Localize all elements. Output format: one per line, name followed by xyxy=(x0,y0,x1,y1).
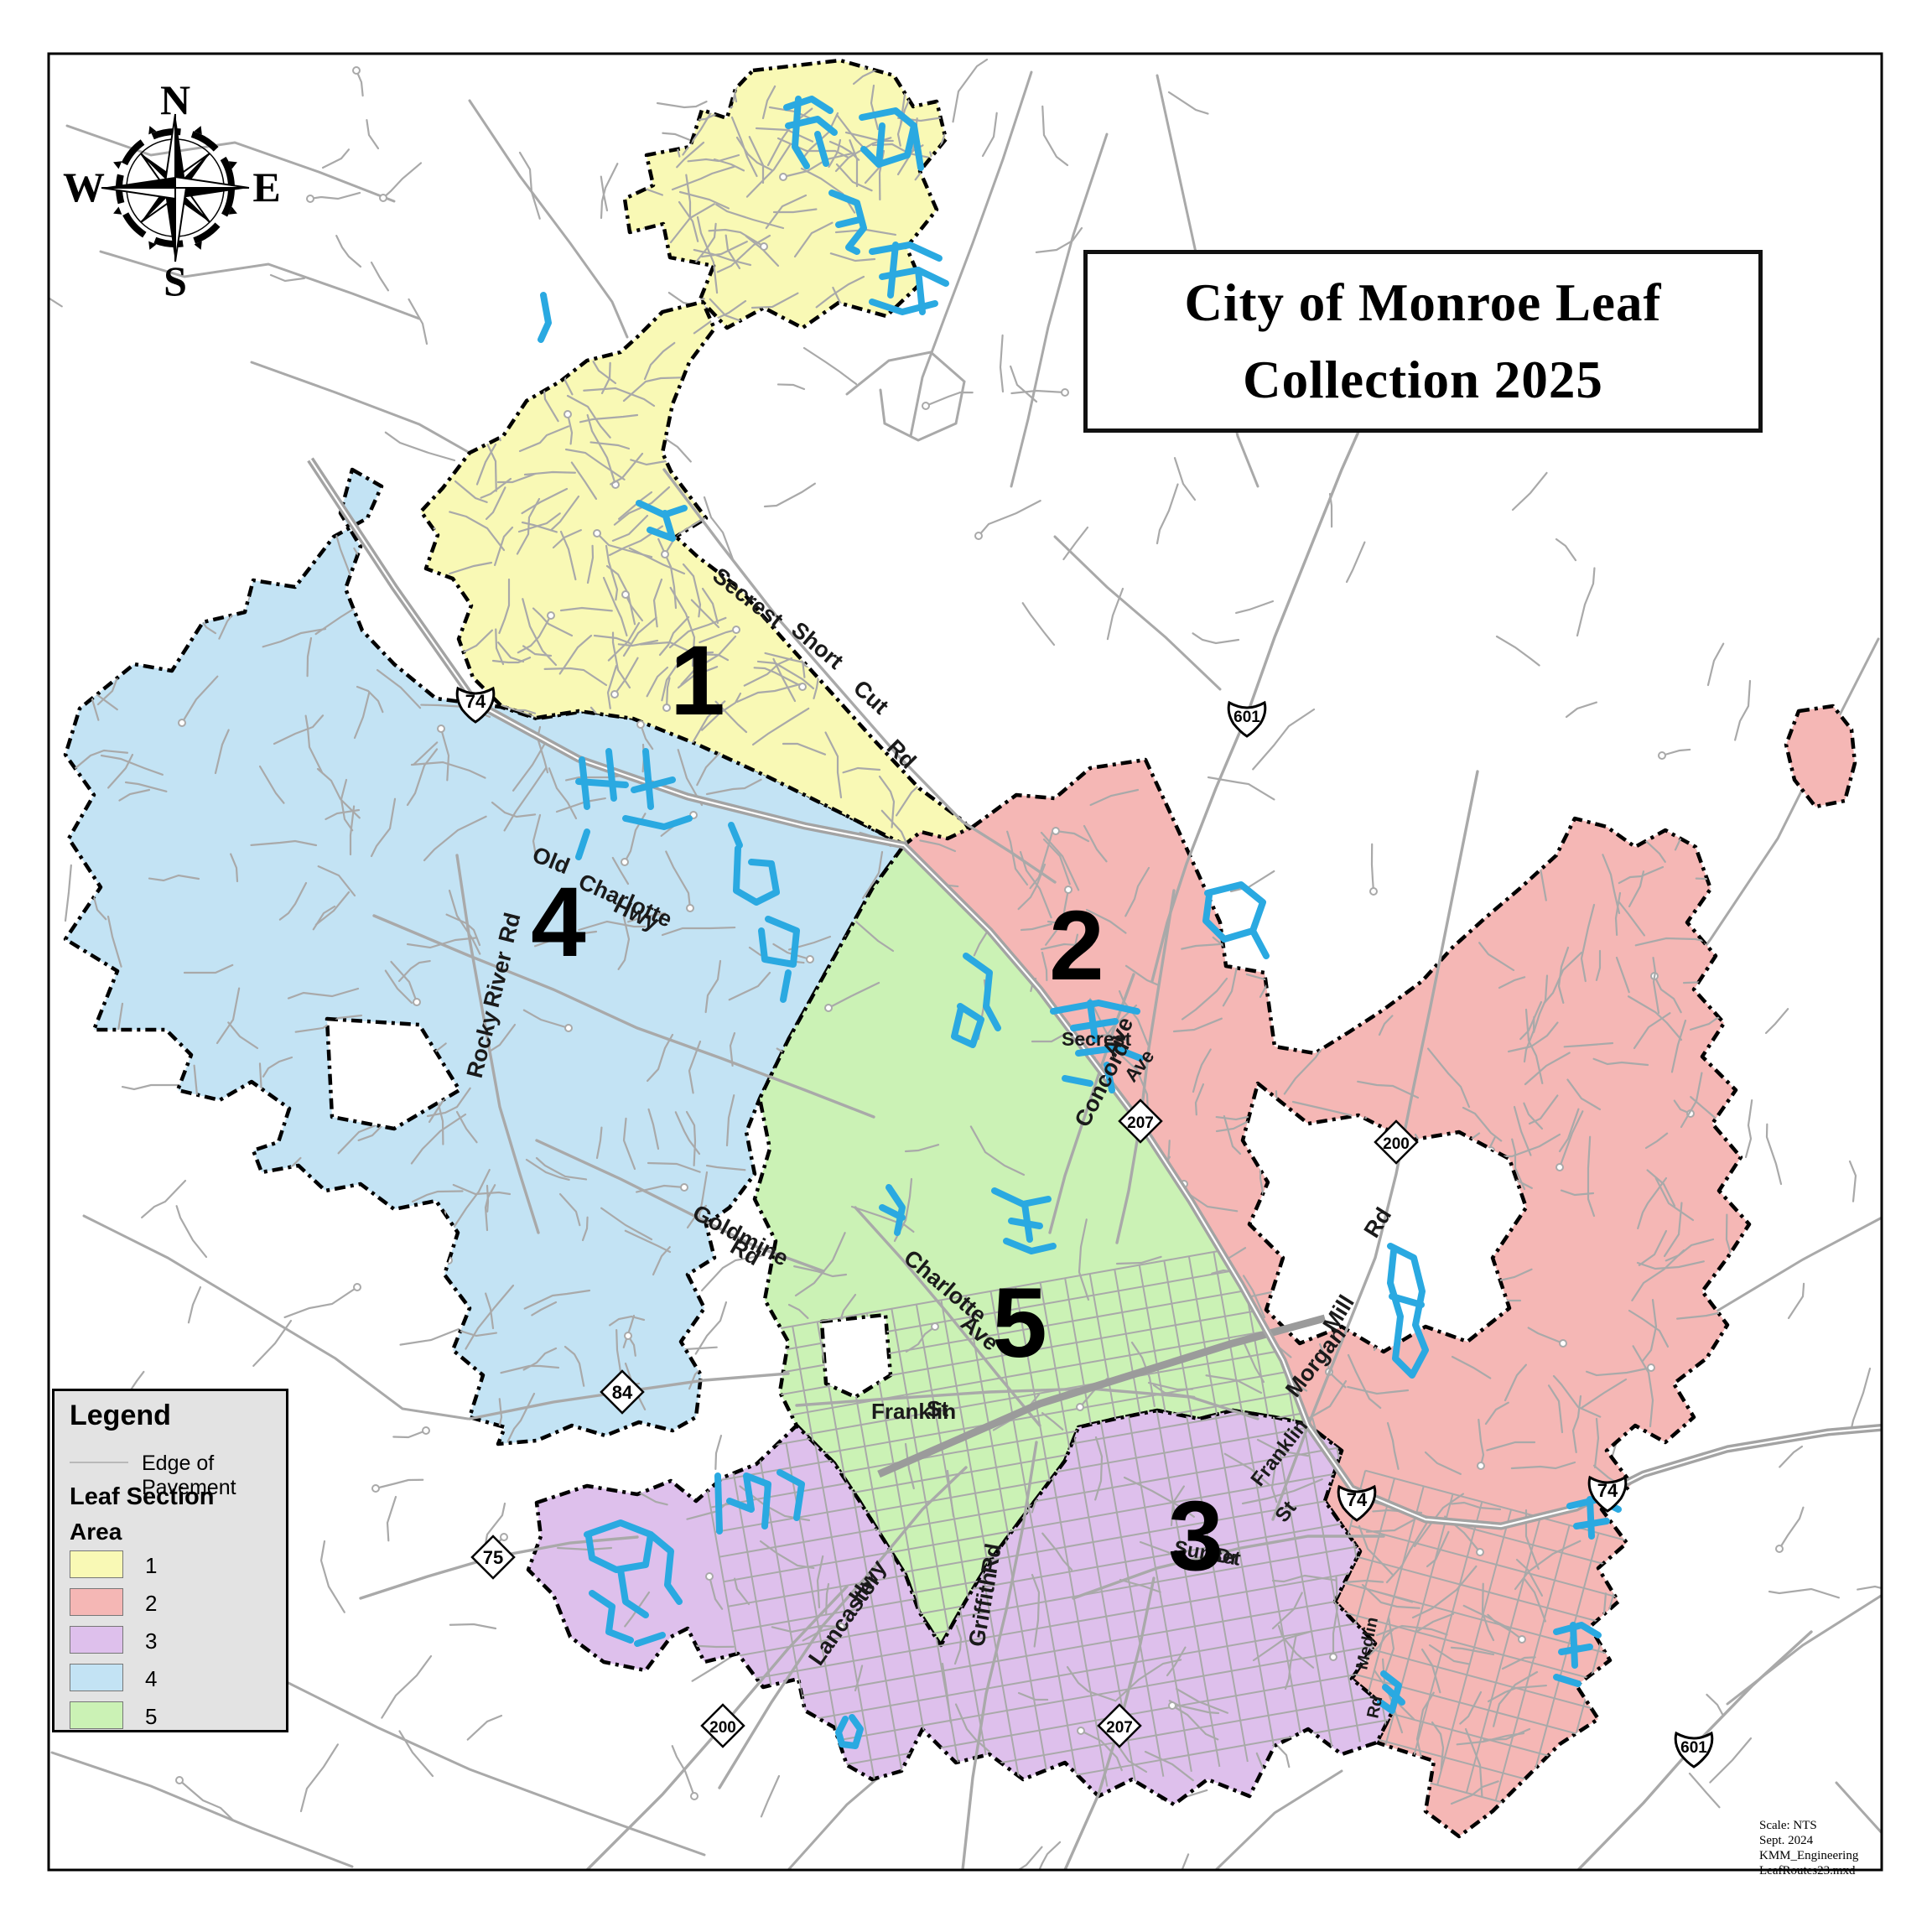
route-number: 75 xyxy=(483,1547,503,1568)
legend-swatch-3 xyxy=(70,1626,123,1654)
legend-swatch-1 xyxy=(70,1550,123,1578)
cul-de-sac xyxy=(564,411,571,418)
cul-de-sac xyxy=(179,719,185,726)
legend-swatch-2 xyxy=(70,1588,123,1616)
compass-label-north: N xyxy=(160,76,190,123)
cul-de-sac xyxy=(825,1005,832,1011)
legend-label-4: 4 xyxy=(145,1666,157,1692)
map-title-line1: City of Monroe Leaf xyxy=(1185,264,1662,341)
cul-de-sac xyxy=(706,1573,713,1580)
route-number: 601 xyxy=(1680,1739,1707,1757)
cul-de-sac xyxy=(932,1323,938,1330)
credit-line: Sept. 2024 xyxy=(1759,1833,1885,1848)
map-title-line2: Collection 2025 xyxy=(1243,341,1603,418)
map-title-box: City of Monroe Leaf Collection 2025 xyxy=(1083,250,1763,433)
cul-de-sac xyxy=(733,626,740,633)
legend-label-2: 2 xyxy=(145,1591,157,1617)
route-number: 601 xyxy=(1233,709,1260,726)
route-number: 207 xyxy=(1127,1114,1154,1132)
cul-de-sac xyxy=(1052,828,1059,834)
legend: Legend Edge of Pavement Leaf Section Are… xyxy=(52,1389,288,1732)
cul-de-sac xyxy=(625,1332,631,1339)
cul-de-sac xyxy=(807,956,813,963)
cul-de-sac xyxy=(176,1777,183,1784)
credit-line: KMM_Engineering xyxy=(1759,1848,1885,1863)
legend-section-title: Leaf Section xyxy=(70,1483,214,1511)
cul-de-sac xyxy=(1169,1702,1176,1709)
legend-swatch-5 xyxy=(70,1701,123,1729)
cul-de-sac xyxy=(1560,1340,1566,1347)
cul-de-sac xyxy=(681,1184,688,1191)
cul-de-sac xyxy=(975,532,982,539)
legend-area-heading: Area xyxy=(70,1519,122,1545)
highlighted-street xyxy=(718,1476,719,1531)
cul-de-sac xyxy=(380,195,387,201)
area-number-1: 1 xyxy=(670,626,725,736)
route-number: 200 xyxy=(709,1719,736,1737)
highlighted-street xyxy=(1590,1499,1592,1536)
cul-de-sac xyxy=(372,1485,379,1492)
route-number: 74 xyxy=(1597,1480,1618,1501)
cul-de-sac xyxy=(1062,389,1068,396)
route-number: 84 xyxy=(612,1382,633,1403)
compass-label-west: W xyxy=(63,164,105,210)
legend-item-5: 5 xyxy=(70,1701,279,1730)
area-number-3: 3 xyxy=(1168,1481,1223,1592)
cul-de-sac xyxy=(1556,1164,1563,1171)
cul-de-sac xyxy=(663,704,670,711)
legend-item-1: 1 xyxy=(70,1550,279,1579)
legend-swatch-4 xyxy=(70,1664,123,1691)
area-number-2: 2 xyxy=(1049,891,1104,1001)
credit-line: Scale: NTS xyxy=(1759,1818,1885,1833)
legend-title: Legend xyxy=(70,1400,171,1432)
legend-edge-row: Edge of Pavement xyxy=(70,1452,279,1473)
cul-de-sac xyxy=(1659,752,1665,759)
cul-de-sac xyxy=(691,1793,698,1800)
cul-de-sac xyxy=(307,195,314,202)
route-number: 74 xyxy=(465,691,486,712)
cul-de-sac xyxy=(687,905,693,911)
cul-de-sac xyxy=(1370,888,1377,895)
legend-item-3: 3 xyxy=(70,1626,279,1654)
cul-de-sac xyxy=(1478,1462,1484,1469)
compass-label-south: S xyxy=(164,257,187,304)
cul-de-sac xyxy=(548,612,554,619)
credit-line: LeafRoutes23.mxd xyxy=(1759,1863,1885,1878)
map-credits: Scale: NTSSept. 2024KMM_EngineeringLeafR… xyxy=(1759,1818,1885,1878)
cul-de-sac xyxy=(1078,1727,1084,1734)
highlighted-street xyxy=(879,126,882,164)
cul-de-sac xyxy=(637,721,644,728)
cul-de-sac xyxy=(780,174,787,180)
cul-de-sac xyxy=(922,402,929,409)
cul-de-sac xyxy=(594,530,600,537)
cul-de-sac xyxy=(761,243,767,250)
map-page: SecrestShortCutRdOldCharlotteHwyRockyRiv… xyxy=(0,0,1932,1932)
area-number-5: 5 xyxy=(992,1268,1047,1379)
legend-label-5: 5 xyxy=(145,1704,157,1730)
cul-de-sac xyxy=(353,67,360,74)
cul-de-sac xyxy=(413,999,420,1005)
edge-of-pavement-swatch xyxy=(70,1462,128,1463)
cul-de-sac xyxy=(1519,1636,1525,1643)
area-number-4: 4 xyxy=(531,867,586,978)
highlighted-street xyxy=(579,782,626,785)
cul-de-sac xyxy=(354,1284,361,1291)
legend-label-3: 3 xyxy=(145,1628,157,1654)
cul-de-sac xyxy=(501,1534,507,1540)
cul-de-sac xyxy=(1648,1364,1654,1371)
street-label-st: St xyxy=(927,1396,948,1421)
cul-de-sac xyxy=(565,1025,572,1031)
cul-de-sac xyxy=(1776,1545,1783,1552)
cul-de-sac xyxy=(611,691,618,698)
cul-de-sac xyxy=(1330,1654,1337,1660)
street-label-secrest: Secrest xyxy=(1062,1028,1131,1050)
highlighted-street xyxy=(1573,1625,1575,1665)
compass-label-east: E xyxy=(252,164,280,210)
cul-de-sac xyxy=(423,1427,429,1434)
cul-de-sac xyxy=(622,591,629,598)
cul-de-sac xyxy=(1077,1404,1083,1410)
route-number: 207 xyxy=(1106,1719,1133,1737)
street-label-rd: Rd xyxy=(976,1541,1006,1576)
route-number: 200 xyxy=(1383,1135,1410,1153)
route-number: 74 xyxy=(1347,1489,1368,1510)
legend-item-2: 2 xyxy=(70,1588,279,1617)
cul-de-sac xyxy=(1477,1549,1483,1555)
cul-de-sac xyxy=(621,859,628,865)
legend-label-1: 1 xyxy=(145,1553,157,1579)
cul-de-sac xyxy=(438,725,444,732)
cul-de-sac xyxy=(662,551,668,558)
legend-item-4: 4 xyxy=(70,1664,279,1692)
